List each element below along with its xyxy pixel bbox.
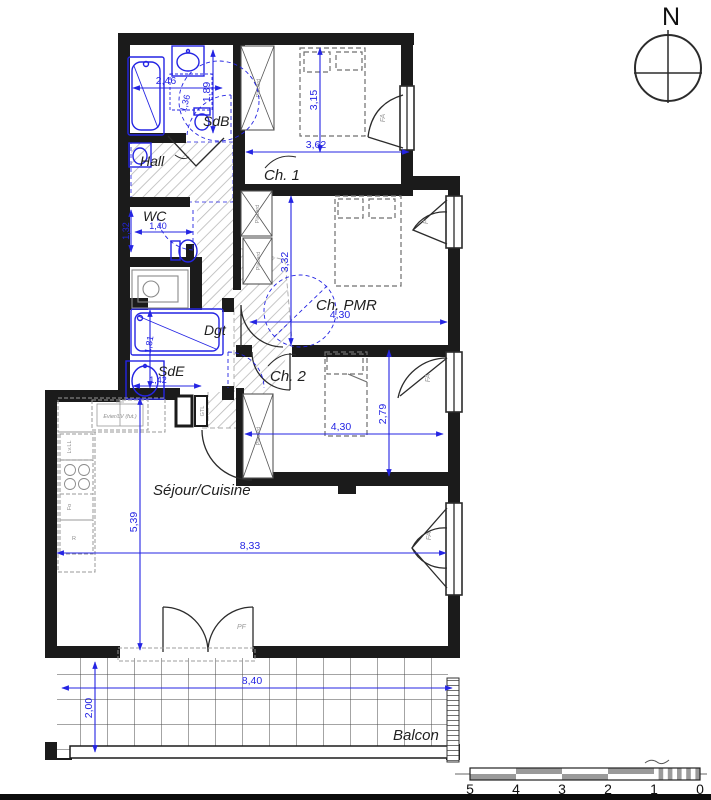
room-label-balcon: Balcon <box>393 727 439 744</box>
dimension-label: 8,33 <box>240 540 261 552</box>
f-label-chpmr: F <box>423 219 430 224</box>
gtl-label: GTL <box>200 406 206 417</box>
kitchen-units <box>58 398 165 572</box>
fa-label-sejour: FA <box>426 531 433 540</box>
fa-label-ch2: FA <box>425 373 432 382</box>
dimension-label: 3,32 <box>279 252 291 273</box>
room-label-hall: Hall <box>140 153 165 169</box>
placard-pmr-2: Placard <box>243 238 272 284</box>
room-label-sdb: SdB <box>203 113 229 129</box>
placard-label: Placard <box>256 79 262 98</box>
bathtub-icon <box>128 57 164 135</box>
placard-label: Placard <box>255 205 261 224</box>
room-label-sde: SdE <box>158 363 185 379</box>
dimension-label: 2,00 <box>83 698 95 719</box>
north-label: N <box>662 3 680 31</box>
room-label-chpmr: Ch. PMR <box>316 297 377 314</box>
washer-label: Lv.LL <box>67 440 73 453</box>
balcony-divider <box>447 678 459 762</box>
dimension-label: 8,40 <box>242 675 263 687</box>
dimension-label: 1,32 <box>121 222 131 240</box>
room-label-sejour: Séjour/Cuisine <box>153 482 251 499</box>
placard-ch2: Placard <box>243 394 273 478</box>
washer-unit <box>60 434 93 460</box>
placard-label: Placard <box>256 427 262 446</box>
cooktop-icon <box>60 460 93 494</box>
washer-nook-icon <box>132 270 188 308</box>
bed-chpmr <box>335 196 401 286</box>
balcony-deck <box>57 658 459 762</box>
scale-bar-mark <box>645 760 669 764</box>
room-label-ch2: Ch. 2 <box>270 368 307 385</box>
room-label-wc: WC <box>143 208 167 224</box>
scale-bar-subdivisions <box>654 768 700 780</box>
scale-bar: 5 4 3 2 1 0 <box>455 760 707 797</box>
footer-rule <box>0 794 711 800</box>
placard-ch1: Placard <box>241 46 274 130</box>
oven-unit <box>60 494 93 520</box>
balcony-railing <box>70 746 448 758</box>
room-label-ch1: Ch. 1 <box>264 167 300 184</box>
gtl-box: GTL <box>176 396 207 426</box>
north-compass-icon: N <box>634 3 702 103</box>
kitchen-sink-label: Evier/LV (fut.) <box>103 414 136 420</box>
sdb-washbasin-icon <box>172 46 204 76</box>
floor-plan: Placard Placard Placard Placard <box>0 0 711 800</box>
room-label-dgt: Dgt <box>204 322 227 338</box>
dimension-label: 1,36 <box>178 93 192 113</box>
dimension-label: 3,15 <box>308 90 320 111</box>
fridge-label: R <box>72 536 76 542</box>
floor-plan-page: Placard Placard Placard Placard <box>0 0 711 800</box>
oven-label: Fo <box>67 504 73 510</box>
dimension-label: 4,30 <box>331 421 352 433</box>
fa-label-ch1: FA <box>380 113 387 122</box>
placard-pmr-1: Placard <box>241 191 272 236</box>
pf-label: PF <box>237 624 247 631</box>
placard-label: Placard <box>256 252 262 271</box>
dimension-label: 1,89 <box>201 82 213 103</box>
dimension-label: 2,46 <box>156 75 177 87</box>
dimension-label: 2,79 <box>377 404 389 425</box>
dimension-label: 3,62 <box>306 139 327 151</box>
dimension-label: 5,39 <box>128 512 140 533</box>
fridge-unit <box>60 520 93 554</box>
